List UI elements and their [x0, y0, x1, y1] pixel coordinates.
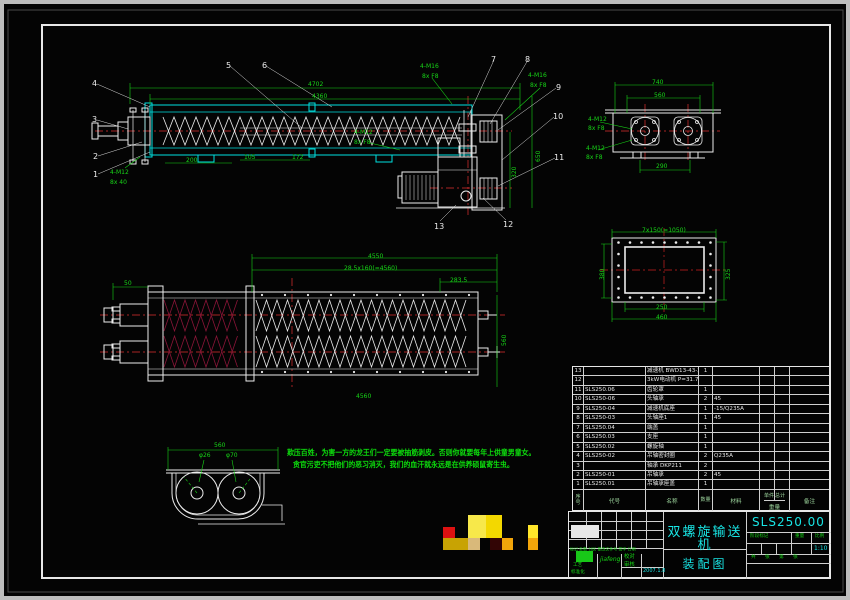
- bom-cell: 1: [573, 480, 584, 489]
- blank-patch: [571, 525, 599, 538]
- bom-cell: [760, 376, 775, 385]
- bom-row: 123kW电动机 P=31.75: [573, 376, 829, 385]
- bom-cell: SLS250-02: [584, 452, 646, 461]
- sheets-label: 共 张 第 张: [751, 556, 802, 561]
- bom-header-name: 名称: [646, 490, 699, 512]
- logo-pixel-block: [443, 538, 468, 550]
- bom-header-weight: 单件 总计 重量: [760, 490, 790, 512]
- bom-cell: 7: [573, 424, 584, 433]
- bom-cell: SLS250.01: [584, 480, 646, 489]
- bom-row: 2SLS250-01吊轴承245: [573, 471, 829, 480]
- bom-cell: SLS250-04: [584, 405, 646, 414]
- bom-cell: [713, 386, 760, 395]
- bom-cell: 支座: [646, 433, 699, 442]
- bom-cell: 11: [573, 386, 584, 395]
- logo-pixel-block: [528, 538, 538, 550]
- bom-cell: 8: [573, 414, 584, 423]
- bom-cell: [713, 480, 760, 489]
- bom-cell: 9: [573, 405, 584, 414]
- weight-label: 重量: [795, 535, 804, 540]
- bom-cell: [790, 462, 829, 471]
- bom-cell: [760, 424, 775, 433]
- bom-cell: [775, 405, 790, 414]
- bom-row: 13减速机 BWD13-43-2.21: [573, 367, 829, 376]
- bom-cell: [760, 443, 775, 452]
- bom-cell: SLS250.02: [584, 443, 646, 452]
- bom-cell: 1: [699, 433, 713, 442]
- bom-cell: [790, 424, 829, 433]
- bom-cell: [760, 480, 775, 489]
- bom-cell: 减速机 BWD13-43-2.2: [646, 367, 699, 376]
- bom-cell: SLS250.04: [584, 424, 646, 433]
- bom-rows: 13减速机 BWD13-43-2.21123kW电动机 P=31.7511SLS…: [573, 367, 829, 490]
- bom-cell: [790, 414, 829, 423]
- product-name: 双螺旋输送机: [665, 526, 745, 552]
- bom-cell: [713, 424, 760, 433]
- bom-cell: 2: [699, 395, 713, 404]
- bom-table: 13减速机 BWD13-43-2.21123kW电动机 P=31.7511SLS…: [572, 366, 830, 511]
- bom-cell: 减速机底座: [646, 405, 699, 414]
- bom-cell: [790, 376, 829, 385]
- bom-cell: 1: [699, 443, 713, 452]
- bom-cell: SLS250-06: [584, 395, 646, 404]
- drawing-number: SLS250.00: [747, 516, 830, 528]
- bom-cell: 1: [699, 367, 713, 376]
- bom-row: 9SLS250-04减速机底座1-15/Q235A: [573, 405, 829, 414]
- bom-header-mat: 材料: [713, 490, 760, 512]
- bom-cell: [760, 414, 775, 423]
- date-text: 2007.1.8: [643, 569, 665, 574]
- bom-cell: 头轴座1: [646, 414, 699, 423]
- bom-header-total: 总计: [775, 490, 785, 500]
- bom-cell: 45: [713, 395, 760, 404]
- logo-pixel-block: [486, 515, 502, 538]
- bom-cell: [775, 443, 790, 452]
- bom-cell: [775, 414, 790, 423]
- bom-cell: [713, 433, 760, 442]
- bom-cell: 6: [573, 433, 584, 442]
- bom-row: 4SLS250-02吊轴密封圈2Q235A: [573, 452, 829, 461]
- stamp-label-2: 标准化: [571, 571, 585, 576]
- bom-header-qty: 数量: [699, 490, 713, 512]
- bom-cell: [713, 376, 760, 385]
- logo-pixel-block: [443, 527, 455, 538]
- bom-row: 11SLS250.06齿轮罩1: [573, 386, 829, 395]
- bom-cell: [760, 433, 775, 442]
- bom-cell: 吊轴承座盖: [646, 480, 699, 489]
- bom-cell: [699, 376, 713, 385]
- bom-cell: 1: [699, 424, 713, 433]
- bom-cell: [790, 443, 829, 452]
- bom-cell: [713, 443, 760, 452]
- cad-drawing-page: 470243602001051724-M128x 404-M168x F84-M…: [0, 0, 850, 600]
- bom-cell: [775, 395, 790, 404]
- bom-cell: 头轴承: [646, 395, 699, 404]
- bom-cell: 2: [699, 462, 713, 471]
- stage-label: 阶段标记: [750, 535, 768, 540]
- logo-pixel-block: [468, 538, 480, 550]
- bom-cell: [584, 376, 646, 385]
- bom-row: 8SLS250-03头轴座1145: [573, 414, 829, 423]
- bom-cell: [775, 386, 790, 395]
- bom-cell: SLS250-01: [584, 471, 646, 480]
- bom-cell: [790, 480, 829, 489]
- bom-cell: 10: [573, 395, 584, 404]
- bom-cell: 螺旋轴: [646, 443, 699, 452]
- bom-cell: 45: [713, 414, 760, 423]
- bom-header-code: 代号: [584, 490, 646, 512]
- bom-cell: 吊轴承: [646, 471, 699, 480]
- bom-header-row: 序 号 代号 名称 数量 材料 单件 总计 重量 备注: [573, 490, 829, 512]
- bom-cell: 2: [699, 452, 713, 461]
- bom-cell: 轴承 DKP211: [646, 462, 699, 471]
- bom-cell: SLS250.03: [584, 433, 646, 442]
- bom-row: 10SLS250-06头轴承245: [573, 395, 829, 404]
- bom-cell: [775, 376, 790, 385]
- bom-cell: [790, 395, 829, 404]
- bom-cell: [584, 462, 646, 471]
- bom-cell: [790, 405, 829, 414]
- bom-cell: 5: [573, 443, 584, 452]
- bom-cell: 1: [699, 386, 713, 395]
- bom-cell: -15/Q235A: [713, 405, 760, 414]
- logo-pixel-block: [490, 538, 502, 550]
- bom-cell: [760, 471, 775, 480]
- check-label: 校对: [624, 555, 635, 560]
- bom-cell: [775, 462, 790, 471]
- bom-header-no: 序 号: [573, 490, 584, 512]
- logo-pixel-block: [528, 525, 538, 538]
- scale-value: 1:10: [814, 545, 827, 552]
- bom-cell: SLS250.06: [584, 386, 646, 395]
- scale-label: 比例: [815, 535, 824, 540]
- bom-cell: Q235A: [713, 452, 760, 461]
- bom-cell: [775, 471, 790, 480]
- bom-cell: 端盖: [646, 424, 699, 433]
- bom-cell: [760, 462, 775, 471]
- bom-row: 3轴承 DKP2112: [573, 462, 829, 471]
- bom-cell: [790, 433, 829, 442]
- bom-cell: [790, 471, 829, 480]
- bom-cell: [775, 452, 790, 461]
- bom-cell: [713, 462, 760, 471]
- stamp-label-1: 工艺: [573, 564, 582, 569]
- bom-cell: 2: [699, 471, 713, 480]
- bom-cell: [775, 424, 790, 433]
- bom-cell: [760, 386, 775, 395]
- bom-cell: [584, 367, 646, 376]
- audit-label: 审核: [624, 563, 635, 568]
- bom-header-unit: 单件: [764, 490, 775, 500]
- bom-cell: 1: [699, 414, 713, 423]
- bom-cell: [713, 367, 760, 376]
- bom-cell: SLS250-03: [584, 414, 646, 423]
- bom-cell: 2: [573, 471, 584, 480]
- bom-cell: [760, 452, 775, 461]
- bom-cell: 12: [573, 376, 584, 385]
- bom-cell: 3: [573, 462, 584, 471]
- sheet-name: 装配图: [665, 558, 745, 570]
- bom-cell: [760, 405, 775, 414]
- bom-row: 7SLS250.04端盖1: [573, 424, 829, 433]
- bom-cell: [790, 367, 829, 376]
- logo-pixel-block: [468, 515, 486, 538]
- bom-header-notes: 备注: [790, 490, 829, 512]
- bom-cell: [760, 367, 775, 376]
- bom-cell: [760, 395, 775, 404]
- green-stamp: [576, 551, 593, 562]
- bom-cell: 4: [573, 452, 584, 461]
- bom-cell: 齿轮罩: [646, 386, 699, 395]
- bom-cell: 1: [699, 480, 713, 489]
- title-block: 标记 处数 分区 更改文件号 签字 日期 工艺 标准化 jiafeng 校对 审…: [568, 511, 830, 578]
- bom-cell: [790, 386, 829, 395]
- bom-cell: [775, 480, 790, 489]
- logo-pixel-block: [502, 538, 513, 550]
- bom-cell: 1: [699, 405, 713, 414]
- bom-row: 1SLS250.01吊轴承座盖1: [573, 480, 829, 489]
- signature-text: jiafeng: [600, 556, 620, 563]
- bom-cell: [790, 452, 829, 461]
- bom-row: 6SLS250.03支座1: [573, 433, 829, 442]
- bom-cell: 45: [713, 471, 760, 480]
- bom-cell: [775, 367, 790, 376]
- bom-cell: 吊轴密封圈: [646, 452, 699, 461]
- bom-cell: 3kW电动机 P=31.75: [646, 376, 699, 385]
- bom-cell: 13: [573, 367, 584, 376]
- bom-row: 5SLS250.02螺旋轴1: [573, 443, 829, 452]
- bom-cell: [775, 433, 790, 442]
